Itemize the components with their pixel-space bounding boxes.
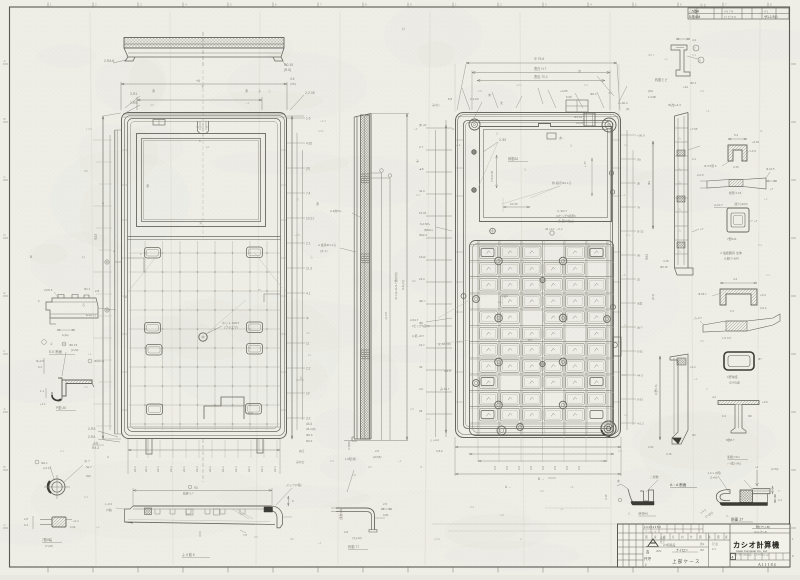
svg-text:4.1: 4.1: [600, 459, 604, 463]
svg-text:47.1(2-11/4.7通(6計)): 47.1(2-11/4.7通(6計)): [393, 272, 398, 300]
svg-text:93: 93: [194, 486, 198, 490]
svg-text:E: E: [4, 291, 6, 295]
svg-text:Φ1: Φ1: [368, 465, 372, 469]
svg-text:け: け: [402, 26, 405, 31]
svg-text:2.8: 2.8: [529, 466, 533, 470]
svg-text:2.1: 2.1: [306, 242, 311, 246]
svg-text:0.6: 0.6: [622, 373, 626, 377]
svg-text:2-0k: 2-0k: [70, 525, 76, 529]
svg-text:22.1: 22.1: [260, 466, 264, 472]
svg-text:0.6: 0.6: [306, 331, 310, 335]
svg-text:3.2: 3.2: [306, 417, 311, 421]
svg-text:あ←: あ←: [559, 135, 565, 140]
svg-text:1/1: 1/1: [712, 547, 716, 551]
svg-text:+7: +7: [754, 219, 758, 223]
svg-text:約-指示Φ1.1ら: 約-指示Φ1.1ら: [552, 180, 572, 185]
svg-text:1.04: 1.04: [86, 127, 92, 131]
svg-text:B: B: [4, 117, 6, 121]
svg-text:(R.8): (R.8): [284, 68, 291, 72]
svg-text:(7動): (7動): [106, 508, 112, 512]
svg-text:0.02: 0.02: [648, 445, 654, 449]
svg-text:2.2: 2.2: [306, 367, 311, 371]
svg-text:7.8: 7.8: [243, 533, 247, 537]
svg-text:0.8: 0.8: [352, 473, 356, 477]
svg-text:あ +R: あ +R: [419, 122, 426, 127]
svg-text:みな: みな: [93, 441, 99, 445]
svg-text:+0.2.8: +0.2.8: [384, 312, 388, 320]
svg-text:P動 46: P動 46: [56, 405, 66, 410]
svg-text:7.8±0.05: 7.8±0.05: [490, 170, 494, 182]
svg-text:1(4a): 1(4a): [62, 333, 69, 337]
svg-text:2-R4.8: 2-R4.8: [104, 59, 114, 63]
svg-text:1 6: 1 6: [306, 117, 311, 121]
svg-text:0.4: 0.4: [722, 414, 726, 418]
svg-text:+0.3: +0.3: [750, 149, 756, 153]
svg-text:Φ 32: Φ 32: [637, 230, 644, 234]
svg-text:(1部(7+6)P): (1部(7+6)P): [724, 256, 739, 261]
svg-text:(漢数1.8): (漢数1.8): [339, 509, 343, 520]
svg-text:あ: あ: [617, 479, 620, 483]
svg-text:1.1: 1.1: [40, 389, 44, 393]
svg-text:1.4.1 (3周): 1.4.1 (3周): [708, 470, 722, 475]
svg-text:4.62: 4.62: [306, 142, 312, 146]
svg-text:4.2: 4.2: [733, 277, 738, 281]
svg-text:4.0: 4.0: [419, 387, 423, 391]
svg-text:+2右0: +2右0: [500, 293, 508, 298]
svg-text:(オイ): (オイ): [320, 249, 328, 253]
svg-text:2-0.4: 2-0.4: [760, 306, 767, 310]
svg-text:2.8: 2.8: [500, 513, 504, 517]
svg-text:約動とど: 約動とど: [655, 77, 669, 82]
svg-text:Φ 0.5頭.6: Φ 0.5頭.6: [704, 163, 717, 168]
svg-text:10.35: 10.35: [510, 202, 518, 206]
svg-text:み 68.7: み 68.7: [440, 386, 450, 391]
svg-text:+2: +2: [246, 101, 250, 105]
svg-text:22.7: 22.7: [419, 343, 425, 347]
svg-text:Φ0.15: Φ0.15: [69, 343, 78, 347]
svg-text:4.1: 4.1: [778, 498, 782, 502]
svg-text:4.6: 4.6: [150, 103, 154, 107]
svg-text:4 電話器具 全体: 4 電話器具 全体: [720, 250, 742, 255]
svg-text:Φ(改)+6.3: Φ(改)+6.3: [668, 102, 681, 107]
svg-text:0.4: 0.4: [330, 459, 334, 463]
svg-text:Φ0.1: Φ0.1: [690, 81, 697, 85]
svg-text:+2: +2: [764, 197, 768, 201]
svg-text:(14(,F)): (14(,F)): [401, 280, 405, 290]
svg-text:№.7: №.7: [86, 465, 92, 469]
svg-text:4×2.8: 4×2.8: [576, 121, 584, 125]
svg-text:3-8.2: 3-8.2: [436, 449, 443, 453]
svg-text:2.5: 2.5: [383, 502, 387, 506]
svg-text:名: 名: [672, 535, 675, 539]
svg-text:+0.2: +0.2: [420, 299, 426, 303]
svg-text:7野946: 7野946: [727, 236, 737, 241]
svg-text:B: B: [4, 465, 6, 469]
svg-text:4.4: 4.4: [624, 413, 628, 417]
svg-text:(3ピッチ5話題): (3ピッチ5話題): [556, 213, 576, 218]
svg-text:28: 28: [419, 409, 423, 413]
svg-text:斜動62: 斜動62: [508, 156, 518, 161]
svg-text:(860m): (860m): [424, 228, 433, 232]
svg-text:8.8: 8.8: [448, 97, 453, 101]
svg-text:附(フリ-8): 附(フリ-8): [756, 524, 770, 529]
svg-text:0.4: 0.4: [416, 193, 420, 197]
svg-text:△5取4: △5取4: [689, 9, 699, 14]
svg-text:2.8: 2.8: [577, 466, 581, 470]
svg-text:ろ: ろ: [268, 88, 271, 93]
svg-text:表面: 表面: [660, 536, 666, 540]
svg-text:+61: +61: [683, 85, 688, 89]
svg-text:+2: +2: [755, 465, 759, 469]
svg-text:チ ェ ッ ク: チ ェ ッ ク: [645, 530, 657, 534]
svg-text:0.4: 0.4: [84, 495, 88, 499]
svg-text:あ: あ: [316, 201, 319, 206]
svg-text:Φ32.4: Φ32.4: [419, 233, 427, 237]
svg-text:(8.2): (8.2): [651, 294, 655, 300]
svg-text:A 金具Φ1.1ら: A 金具Φ1.1ら: [318, 242, 336, 247]
svg-text:1: 1: [300, 376, 302, 380]
svg-text:46 +0.1 →0.2: 46 +0.1 →0.2: [545, 227, 563, 231]
svg-text:+8: +8: [570, 485, 574, 489]
svg-text:F: F: [4, 349, 6, 353]
svg-text:Φ+2.5: Φ+2.5: [36, 359, 44, 363]
svg-text:6-0.5P+: 6-0.5P+: [420, 222, 431, 226]
svg-text:+6: +6: [196, 79, 200, 83]
svg-text:尺守: 尺守: [644, 556, 652, 561]
svg-text:2.8: 2.8: [565, 466, 569, 470]
svg-text:2-R5: 2-R5: [130, 101, 137, 105]
svg-text:ろ: ろ: [82, 302, 85, 307]
svg-text:16.32: 16.32: [419, 211, 427, 215]
svg-text:22.1: 22.1: [144, 466, 148, 472]
svg-text:+2.8: +2.8: [294, 233, 300, 237]
svg-text:(9)4: (9)4: [648, 89, 653, 93]
svg-text:仕: 仕: [690, 535, 693, 539]
svg-text:P.K: P.K: [528, 338, 532, 342]
svg-text:A.4約5m: A.4約5m: [330, 208, 342, 213]
svg-text:ト-0.3: ト-0.3: [104, 502, 112, 506]
svg-text:+2: +2: [622, 193, 626, 197]
svg-text:(9): (9): [306, 167, 310, 171]
svg-text:メッフ(7段): メッフ(7段): [286, 482, 302, 487]
svg-text:2.8: 2.8: [478, 89, 482, 93]
svg-text:Casio Computer Co., Ltd.: Casio Computer Co., Ltd.: [736, 549, 768, 553]
svg-text:+0.1: +0.1: [516, 83, 522, 87]
svg-text:+00.4: +00.4: [620, 101, 628, 105]
svg-text:ぬえ: ぬえ: [299, 449, 305, 453]
svg-text:絆墨46: 絆墨46: [639, 511, 649, 516]
svg-text:4.1: 4.1: [426, 417, 430, 421]
svg-text:A: A: [4, 59, 6, 63]
svg-text:+8: +8: [414, 127, 418, 131]
svg-text:Φ-06.7: Φ-06.7: [698, 292, 707, 296]
svg-text:2.8: 2.8: [553, 466, 557, 470]
svg-text:+2: +2: [96, 525, 100, 529]
svg-text:(2(3)8): (2(3)8): [373, 455, 381, 459]
svg-text:Φ0.6: Φ0.6: [306, 433, 313, 437]
svg-text:+0.4: +0.4: [434, 537, 440, 541]
svg-text:+0.2: +0.2: [690, 365, 696, 369]
svg-text:4.15: 4.15: [666, 452, 672, 456]
svg-text:2.8: 2.8: [493, 466, 497, 470]
svg-text:図: 図: [717, 535, 720, 539]
svg-text:Φ23: Φ23: [94, 234, 98, 240]
svg-text:み: み: [416, 158, 419, 163]
svg-text:あ: あ: [152, 88, 155, 93]
svg-text:+00.9: +00.9: [637, 134, 645, 138]
svg-text:+0.3: +0.3: [760, 293, 766, 297]
svg-text:Φ高: Φ高: [637, 301, 642, 306]
svg-text:あ: あ: [245, 88, 248, 93]
svg-text:4 6 7 8: 4 6 7 8: [724, 10, 734, 14]
svg-text:R0.3: R0.3: [306, 439, 313, 443]
svg-text:46.2(9): 46.2(9): [306, 427, 316, 431]
svg-text:(8): (8): [626, 107, 629, 111]
svg-text:2-64.7: 2-64.7: [410, 318, 419, 322]
svg-text:査: 査: [654, 535, 657, 539]
svg-text:2.8: 2.8: [517, 466, 521, 470]
svg-text:A: A: [4, 407, 6, 411]
svg-text:(選パ)&(M): (選パ)&(M): [734, 202, 748, 206]
svg-text:1.04Φ: 1.04Φ: [648, 95, 657, 99]
svg-text:(7+M): (7+M): [45, 544, 53, 548]
svg-text:2-2.05: 2-2.05: [305, 91, 315, 95]
svg-text:材: 材: [681, 535, 684, 539]
svg-text:Φ2.1: Φ2.1: [41, 461, 48, 465]
svg-text:4.15: 4.15: [663, 259, 669, 263]
svg-text:い: い: [206, 145, 209, 149]
svg-text:y↑: y↑: [284, 288, 288, 292]
svg-text:(プラズマ): (プラズマ): [224, 325, 238, 330]
svg-text:+4: +4: [694, 377, 698, 381]
svg-text:Φ2(0.2): Φ2(0.2): [94, 359, 104, 363]
svg-text:の: の: [637, 278, 640, 282]
svg-text:+2: +2: [398, 459, 402, 463]
svg-text:(7R): (7R): [290, 82, 296, 86]
svg-text:総称 0.15: 総称 0.15: [729, 190, 742, 195]
svg-text:0.4: 0.4: [24, 523, 28, 527]
svg-text:査: 査: [725, 535, 728, 539]
svg-text:7動8幅: 7動8幅: [42, 537, 53, 542]
svg-text:22.1: 22.1: [133, 466, 137, 472]
svg-text:4.15: 4.15: [604, 494, 608, 500]
svg-text:22.1: 22.1: [169, 466, 173, 472]
svg-text:0.15(8): 0.15(8): [347, 441, 351, 450]
svg-text:A →: A →: [505, 485, 511, 489]
svg-text:お: お: [578, 68, 581, 73]
svg-text:1野球話: 1野球話: [727, 374, 738, 379]
svg-text:2.1: 2.1: [60, 449, 64, 453]
svg-text:0.4: 0.4: [38, 365, 42, 369]
svg-text:4.1: 4.1: [306, 292, 311, 296]
svg-text:4.2: 4.2: [692, 38, 697, 42]
svg-text:A→: A→: [498, 300, 503, 304]
svg-text:2-R1: 2-R1: [130, 92, 137, 96]
svg-text:(3+M): (3+M): [71, 348, 78, 352]
svg-text:みかむ: みかむ: [296, 460, 305, 464]
svg-text:ふ: ふ: [310, 254, 313, 259]
svg-text:+0.6: +0.6: [762, 400, 768, 404]
svg-text:B →: B →: [538, 477, 544, 481]
svg-text:22.1: 22.1: [273, 466, 277, 472]
svg-text:Φ92: Φ92: [645, 254, 649, 260]
svg-text:表 面(2)仕上: 表 面(2)仕上: [558, 218, 574, 223]
svg-text:省1: 省1: [700, 542, 705, 546]
svg-text:5.改4 M: 5.改4 M: [689, 14, 701, 19]
svg-text:8動8.7: 8動8.7: [726, 437, 735, 442]
svg-text:4: 4: [732, 556, 734, 560]
svg-text:44.3: 44.3: [637, 374, 643, 378]
svg-text:Φ2: Φ2: [692, 433, 696, 437]
svg-text:Φ2: Φ2: [608, 91, 612, 95]
svg-text:+.77: +.77: [583, 161, 587, 167]
svg-text:10: 10: [306, 392, 310, 396]
svg-text:0.6: 0.6: [540, 489, 544, 493]
svg-text:2.8: 2.8: [700, 89, 704, 93]
svg-text:Φ1.1: Φ1.1: [84, 287, 91, 291]
svg-text:+7: +7: [770, 187, 774, 191]
svg-text:総称 6.7: 総称 6.7: [183, 491, 194, 496]
svg-text:1.6: 1.6: [730, 309, 734, 313]
svg-text:4-6.5: 4-6.5: [444, 369, 451, 373]
svg-text:Φ2: Φ2: [412, 279, 416, 283]
svg-text:22.1: 22.1: [247, 466, 251, 472]
svg-text:Φ0.4: Φ0.4: [590, 92, 597, 96]
svg-text:△ +4.2: △ +4.2: [430, 438, 439, 442]
svg-text:図: 図: [699, 535, 702, 539]
svg-text:(1野1.6): (1野1.6): [653, 385, 658, 395]
svg-text:表包 70.2: 表包 70.2: [534, 74, 548, 79]
svg-text:4- Φ4.7: 4- Φ4.7: [557, 209, 567, 213]
svg-text:ま: ま: [500, 100, 503, 105]
svg-text:7.4: 7.4: [306, 192, 311, 196]
svg-text:4 6: 4 6: [290, 77, 295, 81]
svg-text:ホ-7: ホ-7: [84, 458, 90, 463]
svg-text:10.21: 10.21: [306, 217, 314, 221]
svg-text:22.1: 22.1: [182, 466, 186, 472]
svg-text:Φ-02.5: Φ-02.5: [766, 167, 775, 171]
svg-text:/ +排2+R(): / +排2+R(): [728, 461, 742, 466]
svg-text:0.81: 0.81: [383, 513, 389, 517]
svg-text:(+0.1): (+0.1): [43, 466, 50, 470]
svg-text:0.2: 0.2: [84, 385, 88, 389]
svg-text:E-E(ミ): E-E(ミ): [86, 313, 96, 317]
svg-text:2.8: 2.8: [410, 407, 414, 411]
svg-text:+2: +2: [664, 57, 668, 61]
svg-text:22.1: 22.1: [234, 466, 238, 472]
svg-text:Φ4.04: Φ4.04: [574, 115, 582, 119]
svg-text:14H2: 14H2: [246, 411, 254, 415]
svg-text:斜墨 17: 斜墨 17: [731, 517, 743, 522]
svg-text:9.93: 9.93: [637, 398, 643, 402]
svg-text:2.1: 2.1: [692, 157, 696, 161]
svg-text:6.05: 6.05: [566, 95, 572, 99]
svg-text:約動 77: 約動 77: [348, 544, 359, 549]
svg-text:R0.15: R0.15: [284, 63, 293, 67]
svg-text:〒: 〒: [201, 85, 205, 89]
svg-text:4.15: 4.15: [733, 165, 739, 169]
svg-text:+2: +2: [560, 507, 564, 511]
svg-text:22.1: 22.1: [208, 466, 212, 472]
svg-text:図: 図: [645, 535, 648, 539]
svg-text:0.6: 0.6: [700, 339, 704, 343]
svg-text:+8: +8: [622, 273, 626, 277]
svg-text:2.1: 2.1: [766, 273, 770, 277]
svg-text:ち と: ち と: [700, 3, 707, 7]
svg-text:11.3: 11.3: [306, 267, 312, 271]
svg-text:0.6: 0.6: [254, 535, 258, 539]
svg-text:2.8: 2.8: [505, 466, 509, 470]
svg-text:2-R4: 2-R4: [88, 435, 95, 439]
svg-text:Φ7: Φ7: [758, 357, 762, 361]
svg-text:R4.3: R4.3: [92, 446, 99, 450]
svg-text:2.8: 2.8: [541, 466, 545, 470]
svg-text:(スμ-M): (スμ-M): [352, 536, 362, 540]
svg-text:4.2: 4.2: [712, 395, 716, 399]
svg-text:+0.05: +0.05: [560, 89, 568, 93]
svg-text:Φ2: Φ2: [290, 537, 294, 541]
svg-text:0.4: 0.4: [692, 53, 696, 57]
svg-text:2/3特用品: 2/3特用品: [663, 543, 675, 547]
svg-text:23.3: 23.3: [419, 277, 425, 281]
svg-text:Φ0.1: Φ0.1: [648, 53, 655, 57]
svg-text:+6.02: +6.02: [752, 140, 760, 144]
svg-text:2-2.03: 2-2.03: [470, 97, 479, 101]
svg-text:よ 8 動 8: よ 8 動 8: [182, 552, 195, 557]
svg-text:3M: 3M: [700, 548, 705, 552]
svg-text:▲8: ▲8: [419, 167, 424, 171]
svg-text:9.92: 9.92: [637, 350, 643, 354]
svg-text:尺 度: 尺 度: [712, 542, 718, 546]
svg-text:2-0.5: 2-0.5: [697, 173, 704, 177]
svg-text:み(ち): み(ち): [432, 103, 440, 107]
svg-text:お: お: [296, 196, 299, 201]
svg-text:△総数: △総数: [650, 474, 659, 479]
svg-text:0.4: 0.4: [470, 505, 474, 509]
svg-text:+7: +7: [700, 227, 704, 231]
svg-text:№5: №5: [86, 474, 91, 478]
svg-text:96: 96: [637, 254, 641, 258]
svg-text:1.6 4.5: 1.6 4.5: [722, 336, 731, 340]
svg-text:22.1: 22.1: [156, 466, 160, 472]
svg-text:7k: 7k: [637, 206, 641, 210]
svg-text:2.8: 2.8: [375, 449, 379, 453]
svg-text:Φ0: Φ0: [748, 414, 752, 418]
svg-text:+7.05: +7.05: [690, 127, 698, 131]
svg-text:22.1: 22.1: [221, 466, 225, 472]
svg-text:5.2: 5.2: [734, 133, 739, 137]
svg-text:2.1: 2.1: [624, 323, 628, 327]
svg-text:(1×M): (1×M): [710, 476, 717, 480]
svg-text:い: い: [82, 255, 85, 259]
svg-text:0.4: 0.4: [626, 233, 630, 237]
svg-text:2.8: 2.8: [95, 289, 100, 293]
svg-text:表白 H.7: 表白 H.7: [534, 66, 546, 71]
svg-text:2-8: 2-8: [344, 530, 348, 534]
svg-text:+1.1: +1.1: [40, 402, 46, 406]
svg-text:2.8: 2.8: [24, 517, 28, 521]
svg-text:サ1-1.9い: サ1-1.9い: [764, 14, 778, 19]
svg-text:22.1: 22.1: [195, 466, 199, 472]
svg-text:削勧 N/m: 削勧 N/m: [728, 454, 741, 459]
svg-text:あ: あ: [488, 92, 491, 97]
svg-text:E-E 断面: E-E 断面: [49, 349, 63, 354]
svg-text:4 1: 4 1: [764, 10, 769, 14]
svg-text:4.62: 4.62: [318, 129, 324, 133]
svg-text:ム-0.7: ム-0.7: [694, 315, 702, 320]
svg-text:0.4: 0.4: [758, 243, 762, 247]
svg-text:0.2: 0.2: [618, 449, 622, 453]
